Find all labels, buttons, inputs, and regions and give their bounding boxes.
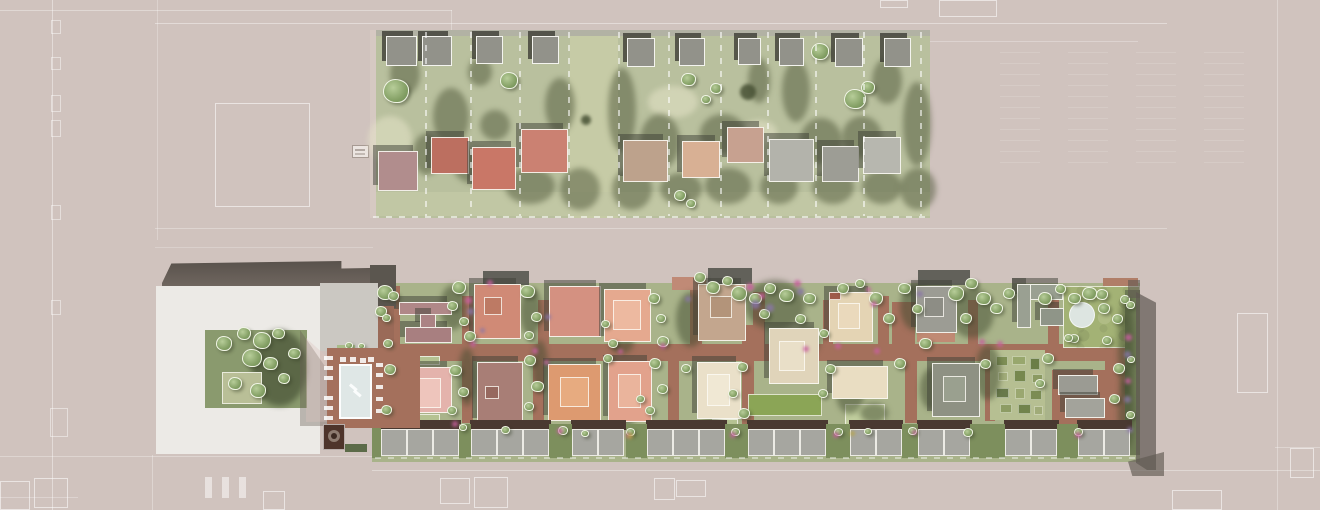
garden-plot — [1015, 388, 1025, 399]
garden-shed-roof — [779, 38, 804, 66]
tree-icon — [811, 43, 829, 60]
lounge-chair — [324, 366, 333, 370]
tree-icon — [636, 395, 645, 403]
cottage-roof — [822, 146, 859, 182]
lot-boundary-dashed — [863, 32, 865, 216]
tree-icon — [819, 329, 829, 338]
tree-icon — [1112, 314, 1123, 324]
neighbor-building-outline — [1290, 448, 1314, 478]
tree-icon — [1003, 288, 1015, 299]
lot-notch-outline — [51, 95, 61, 112]
tree-icon — [1113, 363, 1125, 374]
tree-icon — [1082, 287, 1097, 301]
tree-icon — [1064, 334, 1073, 342]
lounge-chair — [324, 406, 333, 410]
street-line — [0, 456, 372, 457]
lounge-chair — [376, 363, 383, 367]
house-roof-top-row — [420, 314, 436, 328]
shrub-mass — [862, 170, 902, 204]
lawn-panel — [748, 394, 822, 416]
tree-icon — [1042, 353, 1054, 364]
tree-icon — [731, 286, 747, 301]
tree-icon — [980, 359, 991, 369]
garden-plot — [1000, 404, 1012, 413]
roof-courtyard-detail — [710, 296, 732, 318]
lot-boundary-dashed — [920, 32, 922, 216]
dark-bush — [740, 84, 756, 100]
courtyard-tree-icon — [288, 348, 301, 360]
cottage-roof — [682, 141, 720, 178]
garden-plot — [1014, 370, 1026, 382]
tree-icon — [825, 364, 836, 374]
cottage-roof — [769, 139, 814, 182]
garage-pad — [407, 429, 433, 456]
shrub-mass — [458, 348, 476, 406]
planting-pocket — [372, 424, 381, 458]
garden-plot — [1018, 404, 1031, 414]
tree-icon — [649, 358, 661, 369]
house-roof-top-row — [1017, 284, 1031, 328]
roof-courtyard-detail — [484, 297, 502, 315]
garden-shed-roof — [476, 36, 503, 64]
flower-patch-purple — [751, 300, 760, 309]
courtyard-tree-icon — [278, 373, 290, 384]
tree-icon — [1098, 303, 1110, 314]
tree-icon — [603, 354, 613, 363]
lounge-chair — [324, 376, 333, 380]
tree-icon — [894, 358, 906, 369]
tree-icon — [855, 279, 865, 288]
tree-icon — [681, 364, 691, 373]
flower-patch-magenta — [544, 360, 549, 365]
tree-icon — [737, 362, 748, 372]
roof-courtyard-detail — [618, 374, 641, 408]
cottage-roof — [431, 137, 469, 174]
tree-icon — [524, 331, 534, 340]
roof-courtyard-detail — [613, 300, 641, 330]
brick-path — [668, 361, 679, 423]
flower-patch-magenta — [730, 432, 736, 438]
tree-icon — [883, 313, 895, 324]
street-line — [372, 470, 1320, 471]
courtyard-tree-icon — [253, 332, 271, 349]
lot-notch-outline — [51, 120, 61, 137]
garage-pad — [918, 429, 944, 456]
neighbor-building-outline — [1237, 313, 1268, 393]
flower-patch-magenta — [618, 349, 623, 354]
lot-boundary-dashed — [767, 32, 769, 216]
lounge-chair — [324, 356, 333, 360]
tree-icon — [965, 278, 978, 290]
shrub-mass — [782, 60, 810, 122]
tree-icon — [1035, 379, 1045, 388]
flower-patch-ochre — [627, 433, 633, 439]
roof-shadow-step — [918, 270, 970, 285]
flower-patch-purple — [797, 288, 804, 295]
tree-icon — [837, 283, 849, 294]
cottage-roof — [623, 140, 668, 182]
garden-shed-roof — [835, 38, 863, 67]
garage-pad — [523, 429, 549, 456]
neighbor-building-outline — [34, 478, 68, 508]
flower-patch-magenta — [912, 430, 917, 435]
tree-icon — [963, 428, 973, 437]
cottage-roof — [863, 137, 901, 174]
garage-pad — [673, 429, 699, 456]
lounge-chair — [376, 385, 383, 389]
lounge-chair — [324, 416, 333, 420]
courtyard-tree-icon — [237, 327, 251, 340]
cottage-roof — [472, 147, 516, 190]
neighbor-building-outline — [215, 103, 310, 207]
tree-icon — [912, 304, 923, 314]
crosswalk-stripes — [205, 477, 255, 498]
brick-path — [905, 361, 917, 423]
parking-stripes — [1204, 52, 1244, 166]
shrub-mass — [480, 110, 510, 140]
lot-boundary-dashed — [815, 32, 817, 216]
tree-icon — [1126, 301, 1135, 309]
street-line — [157, 0, 158, 240]
lounge-chair — [324, 396, 333, 400]
tree-icon — [657, 384, 668, 394]
flower-patch-magenta — [833, 432, 839, 438]
lot-notch-outline — [51, 205, 61, 220]
tree-icon — [500, 72, 518, 89]
tree-icon — [382, 314, 391, 322]
flower-patch-magenta — [1125, 334, 1132, 341]
neighbor-building-outline — [654, 478, 675, 500]
tree-icon — [706, 281, 720, 294]
tree-icon — [520, 285, 535, 299]
tree-icon — [803, 293, 816, 305]
tree-icon — [1038, 292, 1052, 305]
tree-icon — [458, 387, 469, 397]
neighbor-building-outline — [676, 480, 706, 497]
garage-pad — [748, 429, 774, 456]
flower-patch-magenta — [532, 348, 538, 354]
tree-icon — [738, 408, 750, 419]
flower-patch-magenta — [1125, 378, 1131, 384]
house-roof-top-row — [405, 327, 452, 343]
tree-icon — [381, 405, 392, 415]
tree-icon — [449, 365, 462, 377]
flower-patch-magenta — [874, 348, 880, 354]
tree-icon — [990, 303, 1003, 315]
garden-plot — [1030, 358, 1040, 370]
garden-plot — [1012, 356, 1026, 365]
spa-center — [331, 433, 337, 439]
flower-patch-magenta — [557, 428, 563, 434]
circular-lawn-feature — [1069, 302, 1095, 328]
garage-pad — [774, 429, 800, 456]
house-roof-bottom-row — [1058, 375, 1098, 395]
garage-pad — [471, 429, 497, 456]
courtyard-tree-icon — [250, 383, 266, 398]
garage-pad — [598, 429, 624, 456]
plan-label-glyphs — [355, 153, 365, 155]
lounge-chair — [360, 358, 366, 363]
garden-plot — [1034, 406, 1043, 415]
dark-bush — [581, 115, 591, 125]
cast-shadow-step — [1128, 280, 1140, 298]
tree-icon — [795, 314, 806, 324]
neighbor-building-outline — [474, 477, 508, 508]
roof-courtyard-detail — [838, 303, 860, 329]
tree-icon — [452, 281, 466, 294]
lot-boundary-dashed — [618, 32, 620, 216]
roof-courtyard-detail — [924, 297, 944, 317]
lot-notch-outline — [51, 300, 61, 315]
street-line — [152, 455, 153, 510]
tree-icon — [681, 73, 696, 87]
lot-boundary-dashed — [720, 32, 722, 216]
garden-shed-roof — [386, 36, 417, 66]
flower-patch-purple — [766, 304, 774, 312]
tree-icon — [608, 339, 618, 348]
tree-icon — [601, 320, 610, 328]
garage-pad — [1005, 429, 1031, 456]
street-line — [155, 247, 373, 248]
house-roof-bottom-row — [1065, 398, 1105, 418]
courtyard-tree-icon — [272, 328, 285, 340]
plan-label-glyphs — [355, 149, 365, 151]
tree-icon — [656, 314, 666, 323]
garage-pad — [497, 429, 523, 456]
neighbor-building-outline — [880, 0, 908, 8]
roof-courtyard-detail — [485, 386, 499, 399]
lounge-chair — [350, 357, 356, 362]
tree-icon — [898, 283, 911, 295]
tree-icon — [524, 402, 534, 411]
garden-shed-roof — [679, 38, 705, 66]
garage-pad — [381, 429, 407, 456]
tree-icon — [501, 426, 510, 434]
house-roof-bottom-row — [477, 362, 523, 424]
garage-pad — [876, 429, 902, 456]
tree-icon — [1055, 284, 1066, 294]
tree-icon — [1096, 289, 1108, 300]
flower-patch-magenta — [660, 343, 666, 349]
tree-icon — [388, 291, 399, 301]
courtyard-tree-icon — [263, 357, 278, 371]
flower-patch-purple — [545, 314, 551, 320]
roof-courtyard-detail — [707, 374, 730, 406]
flower-patch-magenta — [452, 421, 458, 427]
tree-icon — [459, 317, 469, 326]
lot-notch-outline — [50, 408, 68, 437]
flower-patch-magenta — [979, 339, 985, 345]
tree-icon — [1126, 411, 1135, 419]
tree-icon — [383, 79, 409, 103]
lot-notch-outline — [51, 20, 61, 34]
garage-pad — [433, 429, 459, 456]
tree-icon — [779, 289, 794, 303]
garden-shed-roof — [532, 36, 559, 64]
lounge-chair — [376, 373, 383, 377]
tree-icon — [919, 338, 932, 350]
lot-boundary-dashed — [668, 32, 670, 216]
house-roof-top-row — [1040, 308, 1064, 326]
tree-icon — [764, 283, 776, 294]
garage-pad — [699, 429, 725, 456]
shrub-mass — [648, 86, 698, 118]
lot-boundary-dashed — [425, 32, 427, 216]
garage-pad — [800, 429, 826, 456]
plot-line-dashed — [375, 457, 1135, 459]
tree-icon — [1102, 336, 1112, 345]
street-line — [155, 23, 1167, 24]
garage-pad — [647, 429, 673, 456]
lot-boundary-dashed — [470, 32, 472, 216]
roof-courtyard-detail — [779, 341, 805, 371]
flower-patch-magenta — [759, 293, 765, 299]
flower-patch-magenta — [794, 280, 801, 287]
parking-stripes — [1068, 52, 1108, 166]
flower-patch-magenta — [487, 280, 493, 286]
tree-icon — [674, 190, 686, 201]
tree-icon — [960, 313, 972, 324]
hedge-strip — [345, 444, 367, 452]
tree-icon — [531, 312, 542, 322]
flower-patch-magenta — [803, 346, 809, 352]
tree-icon — [722, 276, 733, 286]
lounge-chair — [368, 357, 374, 362]
plan-label-box — [352, 145, 369, 158]
flower-patch-purple — [685, 296, 691, 302]
cottage-roof — [521, 129, 568, 173]
tree-icon — [447, 406, 457, 415]
cast-shadow-right — [1136, 292, 1156, 470]
tree-icon — [645, 406, 655, 415]
flower-patch-magenta — [470, 341, 476, 347]
garden-shed-roof — [738, 38, 761, 65]
lot-boundary-dashed — [519, 32, 521, 216]
flower-patch-purple — [1127, 427, 1133, 433]
flower-patch-magenta — [866, 287, 871, 292]
neighbor-building-outline — [939, 0, 997, 17]
parking-stripes — [1136, 52, 1176, 166]
flower-patch-magenta — [871, 301, 877, 307]
tree-icon — [648, 293, 660, 304]
courtyard-tree-icon — [228, 377, 242, 390]
flower-patch-purple — [1124, 351, 1131, 358]
tree-icon — [447, 301, 458, 311]
flower-patch-magenta — [746, 283, 754, 291]
flower-patch-ochre — [850, 431, 855, 436]
cottage-roof — [378, 151, 418, 191]
flower-patch-magenta — [997, 341, 1003, 347]
lot-boundary-dashed — [568, 32, 570, 216]
lot-notch-outline — [51, 57, 61, 70]
flower-patch-magenta — [1075, 432, 1081, 438]
concrete-tile-terrace — [320, 283, 378, 351]
roof-courtyard-detail — [560, 377, 589, 407]
garden-shed-roof — [422, 36, 452, 66]
neighbor-building-outline — [263, 491, 285, 510]
parking-stripes — [1000, 52, 1040, 166]
tree-icon — [694, 272, 706, 283]
flower-patch-purple — [1124, 396, 1131, 403]
street-line — [0, 10, 452, 11]
flower-patch-purple — [467, 308, 474, 315]
tree-icon — [686, 199, 696, 208]
flower-patch-purple — [917, 291, 923, 297]
shrub-mass — [545, 78, 575, 133]
street-line — [155, 228, 1167, 229]
garage-pad — [1031, 429, 1057, 456]
shrub-mass — [903, 82, 931, 166]
tree-icon — [976, 292, 991, 306]
tree-icon — [531, 381, 544, 393]
tree-icon — [728, 389, 738, 398]
shrub-mass — [900, 168, 936, 210]
neighbor-building-outline — [440, 478, 470, 504]
neighbor-building-outline — [0, 481, 30, 510]
garage-pad — [1104, 429, 1130, 456]
flower-patch-purple — [480, 328, 485, 333]
garden-plot — [1030, 390, 1042, 400]
courtyard-tree-icon — [242, 349, 262, 367]
tree-icon — [948, 286, 964, 301]
garden-shed-roof — [627, 38, 655, 67]
roof-courtyard-detail — [943, 376, 966, 402]
tree-icon — [1068, 293, 1081, 305]
house-roof-bottom-row — [832, 366, 888, 399]
garden-shed-roof — [884, 38, 911, 67]
street-line — [1277, 0, 1278, 510]
tree-icon — [818, 389, 828, 398]
flower-patch-magenta — [835, 343, 841, 349]
tree-icon — [1109, 394, 1120, 404]
flower-patch-magenta — [465, 297, 472, 304]
shrub-mass — [560, 168, 600, 210]
neighbor-building-outline — [1172, 490, 1222, 510]
courtyard-tree-icon — [216, 336, 232, 351]
tree-icon — [383, 339, 393, 348]
lounge-chair — [376, 397, 383, 401]
cottage-roof — [727, 127, 764, 163]
site-plan-canvas — [0, 0, 1320, 510]
lot-boundary-dashed — [373, 216, 930, 218]
allotment-top-wall — [373, 30, 930, 36]
tree-icon — [384, 364, 396, 375]
house-roof-top-row — [549, 286, 601, 337]
planting-pocket — [970, 424, 1005, 458]
tree-icon — [524, 355, 536, 366]
lounge-chair — [340, 357, 346, 362]
tree-icon — [701, 95, 711, 104]
